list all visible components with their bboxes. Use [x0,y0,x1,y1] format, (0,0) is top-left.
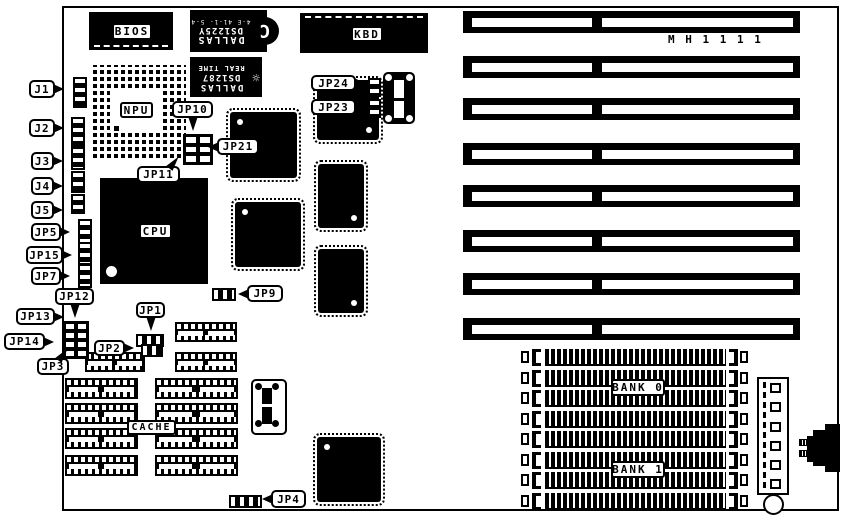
simm-part [545,439,726,448]
callout-jp9: JP9 [247,285,283,302]
arrow-icon [123,343,134,353]
callout-jp2: JP2 [94,340,125,356]
callout-jp23: JP23 [311,99,356,115]
simm-part [729,370,738,387]
pin1-dot [366,127,372,133]
cache-dip-socket-11 [155,455,238,476]
dip-part [157,457,236,462]
simm-part [545,431,726,439]
dip-part [67,405,136,410]
dip-part [67,380,136,385]
jumper-pins-h-3 [212,288,236,301]
din-pin-bottom [799,450,807,457]
kbd-label: KBD [351,26,383,42]
arrow-icon [59,271,70,281]
simm-part [521,433,529,445]
isa-slot-segment [472,192,592,201]
cpu-pin1-dot [106,266,117,277]
motherboard-diagram: BIOS C DALLAS DS1225Y 4-E 41-1- 5-4 KBD … [0,0,846,521]
simm-part [729,431,738,448]
jumper-pins-v-1 [73,77,87,108]
oscillator-socket-bottom [251,379,287,435]
jumper-pins-v-5 [71,194,85,214]
jumper-pins-h-2 [141,344,163,357]
power-pin-5 [770,460,781,470]
isa-slot-segment [472,105,592,114]
mounting-hole [763,494,784,515]
simm-socket-1 [521,349,749,366]
clock-icon: ☼ [252,70,260,85]
simm-part [532,349,541,366]
simm-part [740,413,748,425]
keyboard-din-connector [825,424,840,472]
dip-part [157,392,236,397]
pad [77,323,87,330]
callout-jp15: JP15 [26,246,63,264]
isa-slot-6 [463,230,800,252]
isa-slot-3 [463,98,800,120]
arrow-icon [52,156,63,166]
cache-dip-socket-5 [155,378,238,399]
qfp-chip-6 [317,437,381,502]
isa-slot-segment [472,63,592,72]
simm-part [545,493,726,501]
arrow-icon [52,205,63,215]
bank1-label: BANK 1 [611,461,665,478]
callout-jp21: JP21 [217,138,259,155]
simm-part [532,411,541,428]
simm-part [532,390,541,407]
simm-part [729,452,738,469]
dallas-rtc-chip: ☼ DALLAS DS1287 REAL TIME [190,57,262,97]
dip-part [67,442,136,447]
pin1-dot [237,119,243,125]
simm-part [729,493,738,510]
dip-part [177,324,235,329]
simm-part [521,392,529,404]
cache-dip-socket-2 [175,352,237,372]
bios-label: BIOS [112,23,152,40]
isa-slot-segment [602,325,793,334]
arrow-icon [61,250,72,260]
arrow-icon [53,84,64,94]
arrow-icon [70,303,80,318]
dallas-nvram-chip: C DALLAS DS1225Y 4-E 41-1- 5-4 [190,10,267,52]
isa-slot-2 [463,56,800,78]
arrow-icon [43,337,54,347]
simm-socket-5 [521,431,749,448]
jumper-pins-v-8 [78,264,92,288]
simm-part [545,419,726,428]
jumper-pins-v-9 [368,78,381,97]
simm-part [545,398,726,407]
arrow-icon [53,123,64,133]
pad [185,146,197,154]
jumper-pins-v-7 [78,242,92,265]
keyboard-din-connector-mid [813,430,826,466]
power-pin-3 [770,422,781,432]
simm-part [740,372,748,384]
power-connector [757,377,789,495]
simm-part [532,452,541,469]
dip-part [67,430,136,435]
keyboard-din-connector-tip [807,436,814,462]
simm-part [521,454,529,466]
dip-part [177,354,235,359]
pad [77,350,87,357]
isa-slot-1 [463,11,800,33]
arrow-icon [238,289,249,299]
dip-part [67,392,136,397]
arrow-icon [354,102,365,112]
isa-slot-segment [472,280,592,289]
dallas-logo-icon: C [251,17,279,45]
callout-jp1: JP1 [136,302,165,318]
jumper-pins-v-2 [71,117,85,147]
simm-part [532,370,541,387]
pin1-dot [324,444,330,450]
simm-part [545,370,726,378]
cpu-label: CPU [139,223,172,239]
pad [77,332,87,339]
pad [185,155,197,163]
dip-part [157,442,236,447]
arrow-icon [52,181,63,191]
pin1-dot [351,300,357,306]
pin1-dot [242,209,248,215]
simm-part [729,472,738,489]
npu-pin1-dot [114,126,119,131]
dip-part [87,365,143,370]
callout-j4: J4 [31,177,54,195]
callout-jp12: JP12 [55,288,94,305]
npu-label: NPU [120,102,153,118]
callout-jp5: JP5 [31,223,61,241]
simm-part [729,390,738,407]
isa-slot-segment [472,325,592,334]
arrow-icon [59,227,70,237]
isa-slot-segment [472,18,592,27]
isa-slot-8 [463,318,800,340]
dip-part [177,365,235,370]
oscillator-socket-top [383,72,415,124]
callout-j1: J1 [29,80,55,98]
isa-slot-4 [463,143,800,165]
dip-part [67,469,136,474]
callout-jp4: JP4 [271,490,306,508]
simm-part [532,493,541,510]
arrow-icon [146,316,156,331]
board-model-text: M H 1 1 1 1 [668,33,763,46]
nvram-silkscreen: DALLAS DS1225Y 4-E 41-1- 5-4 [190,17,251,44]
isa-slot-5 [463,185,800,207]
cache-dip-socket-4 [65,378,138,399]
simm-part [521,413,529,425]
power-connector-pins [763,382,766,488]
simm-part [532,472,541,489]
jumper-pins-v-10 [368,99,381,118]
cache-label: CACHE [127,420,176,435]
simm-part [532,431,541,448]
pin1-dot [351,215,357,221]
simm-part [740,433,748,445]
simm-part [545,480,726,489]
simm-part [521,495,529,507]
qfp-chip-5 [318,249,364,313]
isa-slot-segment [472,237,592,246]
rtc-silkscreen: DALLAS DS1287 REAL TIME [190,63,252,90]
isa-slot-segment [602,150,793,159]
simm-part [545,452,726,460]
isa-slot-segment [602,237,793,246]
din-pin-top [799,439,807,446]
power-pin-1 [770,383,781,393]
simm-part [740,351,748,363]
isa-slot-segment [472,150,592,159]
pad [199,155,211,163]
dip-part [157,405,236,410]
jumper-pins-h-4 [229,495,262,508]
callout-jp14: JP14 [4,333,45,350]
callout-jp3: JP3 [37,358,69,375]
simm-part [521,372,529,384]
jumper-pins-v-4 [71,171,85,193]
simm-part [521,351,529,363]
isa-slot-segment [602,280,793,289]
arrow-icon [53,312,64,322]
callout-jp24: JP24 [311,75,356,91]
simm-part [729,349,738,366]
simm-part [545,349,726,357]
qfp-chip-4 [318,164,364,228]
arrow-icon [354,78,365,88]
isa-slot-segment [602,192,793,201]
simm-socket-8 [521,493,749,510]
jumper-pins-v-6 [78,219,92,244]
arrow-icon [208,142,219,152]
bank0-label: BANK 0 [611,379,665,396]
callout-j3: J3 [31,152,54,170]
pad [65,332,75,339]
arrow-icon [188,116,198,131]
pad [77,341,87,348]
cache-dip-socket-10 [65,455,138,476]
dip-part [67,457,136,462]
power-pin-2 [770,402,781,412]
dip-part [157,469,236,474]
isa-slot-segment [602,18,793,27]
callout-j2: J2 [29,119,55,137]
simm-part [740,392,748,404]
simm-part [545,501,726,510]
isa-slot-7 [463,273,800,295]
callout-jp11: JP11 [137,166,180,183]
pad [65,323,75,330]
callout-jp7: JP7 [31,267,61,285]
callout-j5: J5 [31,201,54,219]
simm-part [545,357,726,366]
cache-dip-socket-1 [175,322,237,342]
power-pin-6 [770,479,781,489]
simm-part [740,454,748,466]
qfp-chip-2 [235,202,301,267]
dip-part [67,417,136,422]
simm-part [729,411,738,428]
dip-part [177,335,235,340]
simm-part [545,411,726,419]
simm-part [521,474,529,486]
pad [185,136,197,144]
simm-part [740,474,748,486]
simm-part [740,495,748,507]
jumper-pins-v-3 [71,147,85,170]
isa-slot-segment [602,63,793,72]
arrow-icon [262,494,273,504]
power-pin-4 [770,441,781,451]
dip-part [157,380,236,385]
callout-jp13: JP13 [16,308,55,325]
callout-jp10: JP10 [172,101,213,118]
simm-socket-4 [521,411,749,428]
isa-slot-segment [602,105,793,114]
